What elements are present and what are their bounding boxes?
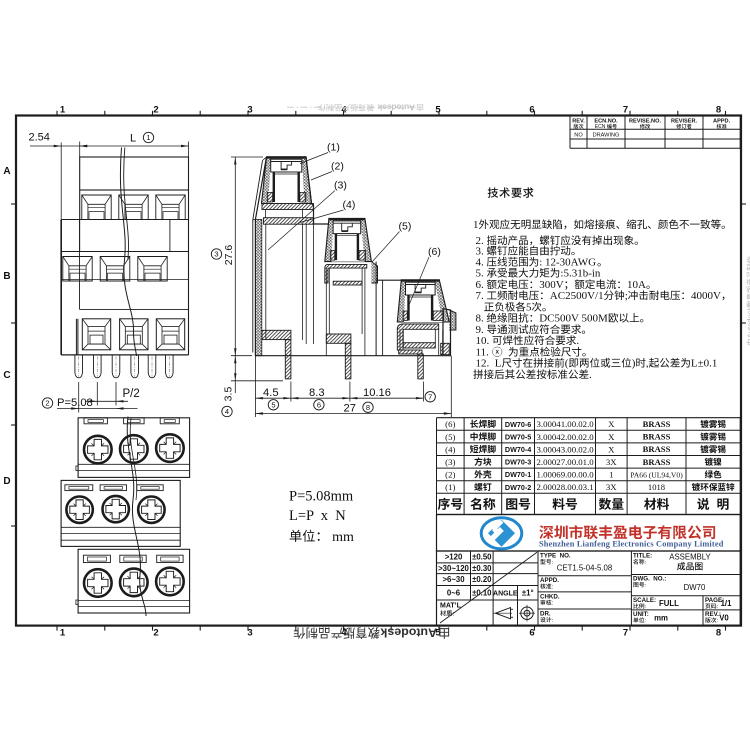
svg-text:3X: 3X [606, 457, 617, 467]
svg-text:P/2: P/2 [123, 388, 140, 400]
svg-text:2: 2 [153, 627, 158, 638]
svg-text:8.3: 8.3 [309, 387, 325, 399]
svg-text:3X: 3X [606, 482, 617, 492]
svg-text:10.: 10. [476, 335, 493, 347]
svg-text:NO: NO [574, 133, 583, 139]
svg-text:DW70-4: DW70-4 [505, 445, 531, 454]
svg-text:(1): (1) [327, 142, 340, 154]
svg-text:SCALE:: SCALE: [633, 597, 656, 604]
svg-text:1: 1 [60, 104, 66, 115]
svg-text:±0.10: ±0.10 [472, 588, 492, 597]
svg-text:X: X [608, 444, 615, 454]
svg-text:1: 1 [473, 219, 479, 231]
svg-text:,: , [646, 358, 649, 370]
svg-text:1.00069.00.00.0: 1.00069.00.00.0 [537, 470, 595, 480]
svg-text:12. L: 12. L [476, 358, 502, 370]
svg-text:UNIT:: UNIT: [633, 611, 649, 618]
svg-text:L±0.1: L±0.1 [691, 358, 718, 370]
svg-text:6: 6 [529, 627, 534, 638]
svg-text:DW70-2: DW70-2 [505, 483, 531, 492]
svg-text:>30~120: >30~120 [438, 564, 469, 573]
svg-text:8: 8 [716, 104, 721, 115]
svg-text:CHKD.: CHKD. [540, 593, 560, 600]
svg-text:APPD.: APPD. [713, 118, 731, 124]
svg-text:mm: mm [654, 614, 668, 623]
svg-text:Shenzhen Lianfeng Electronics: Shenzhen Lianfeng Electronics Company Li… [539, 540, 724, 549]
svg-text:>120: >120 [445, 553, 463, 562]
svg-text:2: 2 [153, 104, 158, 115]
svg-text:>6~30: >6~30 [442, 575, 465, 584]
svg-text:C: C [3, 370, 10, 381]
svg-text:Autodesk: Autodesk [380, 625, 437, 639]
svg-text:V0: V0 [719, 614, 729, 623]
svg-text:BRASS: BRASS [643, 419, 671, 429]
svg-text:(5): (5) [445, 432, 455, 442]
svg-text:7: 7 [623, 627, 628, 638]
svg-text:3: 3 [214, 250, 218, 259]
svg-text:5: 5 [435, 104, 441, 115]
svg-text:7.: 7. [476, 290, 487, 302]
svg-text:DW70-3: DW70-3 [505, 458, 531, 467]
svg-text:1: 1 [609, 470, 613, 480]
svg-text:ASSEMBLY: ASSEMBLY [669, 553, 711, 562]
svg-text:0~6: 0~6 [447, 588, 461, 597]
svg-text:DRAWING: DRAWING [593, 133, 620, 139]
svg-text:3.00041.00.02.0: 3.00041.00.02.0 [537, 419, 595, 429]
svg-text:3: 3 [247, 627, 252, 638]
svg-text:(6): (6) [428, 246, 441, 258]
svg-text:(: ( [565, 358, 569, 370]
svg-text:8: 8 [716, 627, 721, 638]
svg-text:APPD.: APPD. [540, 577, 559, 584]
svg-text:PA66 (UL94,V0): PA66 (UL94,V0) [630, 470, 683, 479]
svg-text:Autodesk: Autodesk [746, 306, 750, 338]
svg-text:BRASS: BRASS [643, 444, 671, 454]
svg-text:3.5: 3.5 [223, 387, 235, 402]
svg-text:(3): (3) [334, 180, 347, 192]
svg-text:5: 5 [271, 401, 275, 410]
svg-text:2.00028.00.03.1: 2.00028.00.03.1 [537, 482, 594, 492]
svg-text:4: 4 [225, 407, 229, 416]
svg-text:L: L [130, 133, 136, 145]
svg-text:±0.30: ±0.30 [472, 564, 492, 573]
svg-text:27: 27 [344, 403, 356, 415]
svg-text:(1): (1) [445, 482, 455, 492]
svg-text:DWG. NO.:: DWG. NO.: [633, 575, 666, 582]
svg-text:BRASS: BRASS [643, 457, 671, 467]
svg-text:(5): (5) [399, 221, 412, 233]
svg-text:(2): (2) [331, 161, 344, 173]
svg-text:A: A [3, 166, 10, 177]
svg-text:3.00043.00.02.0: 3.00043.00.02.0 [537, 444, 595, 454]
svg-text:DW70-6: DW70-6 [505, 420, 531, 429]
svg-text:BRASS: BRASS [643, 432, 671, 442]
svg-text:ECN: ECN [595, 124, 607, 130]
svg-text:DW70-5: DW70-5 [505, 432, 531, 441]
svg-text:3.: 3. [476, 246, 487, 258]
svg-text:10A: 10A [627, 279, 646, 291]
svg-text:L=P x N: L=P x N [289, 508, 346, 524]
svg-text:(4): (4) [343, 199, 356, 211]
svg-text:): ) [632, 358, 636, 370]
svg-text:AC2500V/1: AC2500V/1 [550, 290, 604, 302]
svg-text:MAT’L: MAT’L [440, 603, 462, 610]
svg-text:DW70-1: DW70-1 [505, 470, 531, 479]
svg-text:±0.50: ±0.50 [472, 553, 492, 562]
svg-text:2: 2 [45, 399, 49, 408]
svg-text:5.: 5. [476, 268, 487, 280]
svg-text:X: X [608, 432, 615, 442]
svg-text:±1°: ±1° [522, 588, 534, 597]
svg-text:3: 3 [247, 104, 252, 115]
svg-text:(6): (6) [445, 419, 455, 429]
svg-text:6: 6 [317, 401, 321, 410]
svg-text:8.: 8. [476, 313, 487, 325]
svg-text:2.00027.00.01.0: 2.00027.00.01.0 [537, 457, 595, 467]
svg-text:(4): (4) [445, 444, 455, 454]
svg-text:;: ; [625, 290, 628, 302]
svg-text:6: 6 [529, 104, 534, 115]
svg-text:1018: 1018 [648, 482, 665, 492]
svg-text:TITLE:: TITLE: [633, 553, 652, 560]
svg-text:4: 4 [341, 104, 347, 115]
svg-text:4000V: 4000V [691, 290, 721, 302]
svg-text:5: 5 [526, 302, 532, 314]
svg-text:REVISE.NO.: REVISE.NO. [629, 118, 661, 124]
svg-text:7: 7 [428, 393, 432, 402]
svg-text:2.54: 2.54 [29, 132, 50, 144]
svg-text:±0.20: ±0.20 [472, 575, 492, 584]
svg-text:1/1: 1/1 [721, 599, 733, 608]
svg-text:.: . [589, 369, 592, 381]
svg-text:CET1.5-04-5.08: CET1.5-04-5.08 [557, 564, 612, 573]
svg-text:27.6: 27.6 [223, 245, 235, 266]
svg-text:4.5: 4.5 [263, 387, 279, 399]
svg-text:7: 7 [623, 104, 628, 115]
svg-text:B: B [3, 271, 10, 282]
svg-text:REVISER.: REVISER. [671, 118, 698, 124]
svg-text:(2): (2) [445, 470, 455, 480]
svg-text:FULL: FULL [659, 599, 679, 608]
svg-text:P=5.08mm: P=5.08mm [289, 489, 354, 505]
svg-text:1: 1 [146, 133, 150, 142]
svg-text:REV.: REV. [572, 118, 585, 124]
svg-text:(3): (3) [445, 457, 455, 467]
svg-text:D: D [3, 476, 10, 487]
svg-text:DR.: DR. [540, 610, 551, 617]
svg-text:1: 1 [60, 627, 66, 638]
svg-text:DW70: DW70 [684, 583, 706, 592]
svg-text:10.16: 10.16 [363, 387, 391, 399]
svg-text:ANGLE: ANGLE [493, 590, 518, 597]
svg-text:P=5.08: P=5.08 [57, 397, 93, 409]
svg-text:TYPE NO.: TYPE NO. [540, 553, 571, 560]
svg-text:.: . [576, 335, 579, 347]
svg-text:3.00042.00.02.0: 3.00042.00.02.0 [537, 432, 595, 442]
svg-text:DC500V 500M: DC500V 500M [539, 313, 608, 325]
svg-text:mm: mm [329, 530, 354, 545]
svg-text::5.31b-in: :5.31b-in [560, 268, 601, 280]
svg-text:8: 8 [366, 403, 370, 412]
svg-text:X: X [608, 419, 615, 429]
